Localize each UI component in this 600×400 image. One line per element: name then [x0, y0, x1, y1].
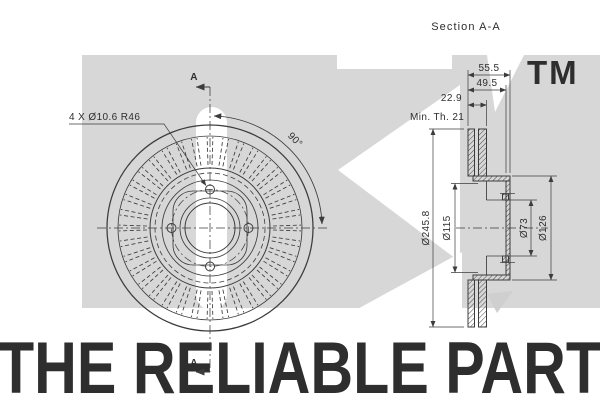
bore-step-bottom [503, 256, 509, 262]
section-title: Section A-A [431, 21, 501, 33]
technical-drawing-canvas: TM THE RELIABLE PART 4 X Ø10.6 R46 [0, 0, 600, 400]
bore-step-top [503, 194, 509, 200]
hat-face-top [473, 176, 510, 181]
dim-inner-width-label: 49.5 [476, 78, 497, 89]
dim-thickness-label: 22.9 [441, 93, 462, 104]
dim-bore-label: Ø73 [519, 218, 530, 238]
dim-hub-label: Ø126 [538, 215, 549, 241]
section-letter-top: A [190, 72, 198, 83]
bolt-hole-note-text: 4 X Ø10.6 R46 [69, 112, 140, 123]
logo-letter-n-counter [196, 107, 227, 310]
outboard-plate-bottom [468, 280, 475, 327]
min-thickness-note: Min. Th. 21 [410, 112, 464, 123]
drawing-sheet: TM THE RELIABLE PART 4 X Ø10.6 R46 [0, 0, 600, 400]
tm-mark: TM [527, 54, 579, 91]
dim-total-width-label: 55.5 [478, 63, 499, 74]
logo-square [82, 55, 600, 308]
outboard-plate-top [468, 129, 475, 176]
tagline-text: THE RELIABLE PART [0, 328, 600, 400]
dim-bolt-circle-label: Ø115 [442, 215, 453, 240]
logo-letter-k-top-gap [337, 55, 452, 69]
inboard-plate-top [479, 129, 487, 176]
dim-outer-diameter-label: Ø245.8 [421, 210, 432, 245]
hat-face-bottom [473, 275, 510, 280]
inboard-plate-bottom [479, 280, 487, 327]
section-letter-bottom: A [190, 358, 198, 369]
